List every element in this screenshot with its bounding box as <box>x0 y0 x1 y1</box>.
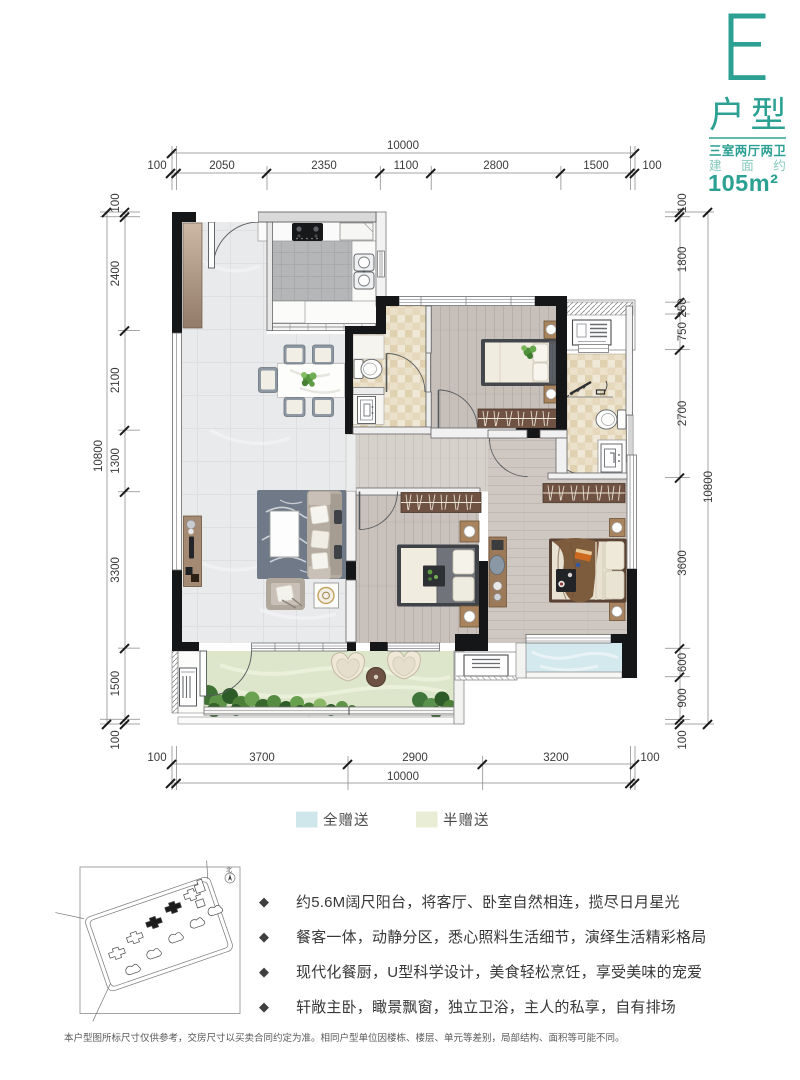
svg-text:250: 250 <box>677 298 689 317</box>
svg-text:现代化餐厨，U型科学设计，美食轻松烹饪，享受美味的宠爱: 现代化餐厨，U型科学设计，美食轻松烹饪，享受美味的宠爱 <box>296 963 702 981</box>
svg-text:◆: ◆ <box>259 929 269 944</box>
svg-text:全赠送: 全赠送 <box>323 811 370 829</box>
svg-text:105m²: 105m² <box>708 170 778 196</box>
svg-text:1500: 1500 <box>110 671 122 697</box>
svg-text:100: 100 <box>110 730 122 749</box>
svg-text:10800: 10800 <box>93 440 105 472</box>
svg-text:100: 100 <box>677 730 689 749</box>
svg-text:3200: 3200 <box>543 752 569 764</box>
svg-text:餐客一体，动静分区，悉心照料生活细节，演绎生活精彩格局: 餐客一体，动静分区，悉心照料生活细节，演绎生活精彩格局 <box>296 929 706 946</box>
svg-text:◆: ◆ <box>259 999 269 1014</box>
svg-text:100: 100 <box>110 193 122 212</box>
svg-text:约5.6M阔尺阳台，将客厅、卧室自然相连，揽尽日月星光: 约5.6M阔尺阳台，将客厅、卧室自然相连，揽尽日月星光 <box>296 894 680 911</box>
svg-text:北: 北 <box>226 866 232 874</box>
svg-text:本户型图所标尺寸仅供参考，交房尺寸以买卖合同约定为准。相同户: 本户型图所标尺寸仅供参考，交房尺寸以买卖合同约定为准。相同户型单位因楼栋、楼层、… <box>64 1032 625 1044</box>
svg-text:1300: 1300 <box>110 448 122 474</box>
svg-text:10000: 10000 <box>387 140 419 152</box>
svg-text:2800: 2800 <box>483 160 509 172</box>
svg-text:1500: 1500 <box>583 160 609 172</box>
svg-text:2700: 2700 <box>677 401 689 427</box>
svg-text:750: 750 <box>677 322 689 341</box>
svg-text:2050: 2050 <box>209 160 235 172</box>
svg-text:半赠送: 半赠送 <box>443 812 490 829</box>
svg-text:1100: 1100 <box>394 160 419 172</box>
svg-text:900: 900 <box>677 688 689 707</box>
svg-text:100: 100 <box>640 752 659 764</box>
svg-text:3300: 3300 <box>110 557 122 583</box>
svg-text:三室两厅两卫: 三室两厅两卫 <box>709 143 786 158</box>
svg-text:2400: 2400 <box>110 261 122 287</box>
svg-text:10000: 10000 <box>387 771 419 783</box>
svg-text:3600: 3600 <box>677 550 689 576</box>
svg-text:100: 100 <box>642 160 661 172</box>
svg-text:2100: 2100 <box>110 368 122 394</box>
svg-text:3700: 3700 <box>249 752 275 764</box>
svg-text:10800: 10800 <box>703 471 715 503</box>
svg-text:100: 100 <box>147 752 166 764</box>
svg-text:2350: 2350 <box>311 160 337 172</box>
svg-text:轩敞主卧，瞰景飘窗，独立卫浴，主人的私享，自有排场: 轩敞主卧，瞰景飘窗，独立卫浴，主人的私享，自有排场 <box>296 998 676 1016</box>
svg-text:100: 100 <box>677 193 689 212</box>
svg-text:600: 600 <box>677 653 689 672</box>
svg-text:◆: ◆ <box>259 964 269 979</box>
svg-text:户型: 户型 <box>709 94 792 135</box>
svg-text:100: 100 <box>147 160 166 172</box>
svg-text:1800: 1800 <box>677 247 689 273</box>
svg-text:2900: 2900 <box>402 752 428 764</box>
svg-text:◆: ◆ <box>259 894 269 909</box>
